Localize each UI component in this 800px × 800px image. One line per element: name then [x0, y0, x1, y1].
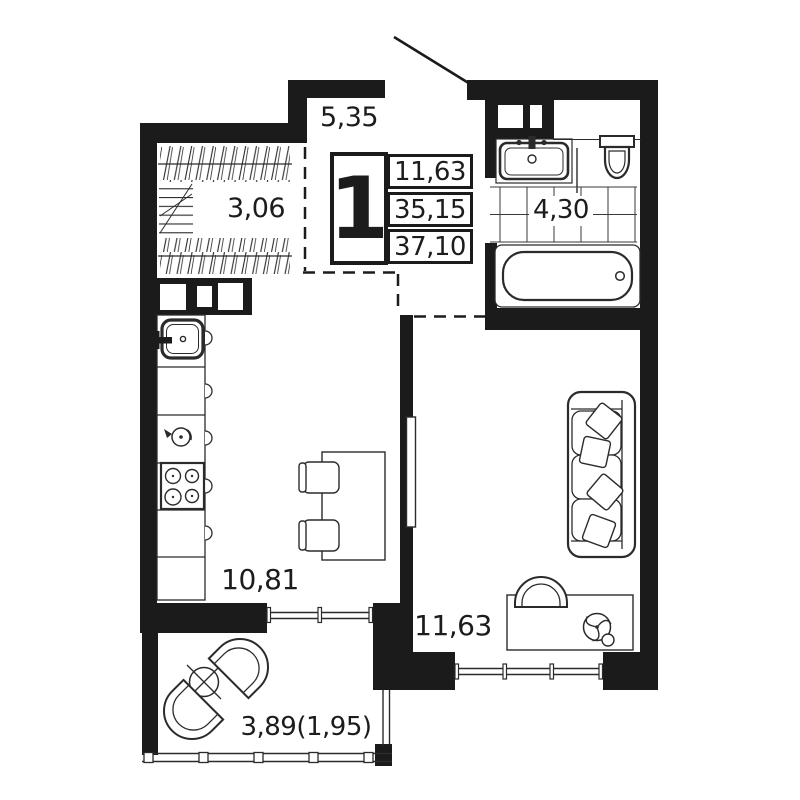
- living-room-window: [455, 652, 603, 690]
- hallway-area-label: 5,35: [312, 104, 386, 132]
- sofa: [568, 392, 635, 557]
- bathtub: [495, 245, 640, 307]
- tv-unit: [407, 417, 416, 527]
- bathroom-area-label: 4,30: [524, 197, 598, 224]
- living-room-area-label: 11,63: [408, 611, 498, 640]
- legend-total-area: 37,10: [387, 229, 473, 264]
- toilet: [600, 136, 634, 178]
- kitchen-chair: [299, 520, 339, 551]
- balcony-armchair: [209, 627, 280, 698]
- legend-box: 1 11,63 35,15 37,10: [330, 152, 473, 265]
- legend-living-area: 11,63: [387, 154, 473, 189]
- desk-chair: [515, 577, 567, 607]
- kitchen-stove: [161, 463, 204, 509]
- legend-rooms-count: 1: [330, 152, 388, 265]
- legend-usable-area: 35,15: [387, 192, 473, 227]
- wardrobe-area-label: 3,06: [219, 195, 293, 223]
- floorplan-graphic: [0, 0, 800, 800]
- balcony-window: [267, 603, 373, 633]
- kitchen-area-label: 10,81: [215, 565, 305, 594]
- floor-plan: 5,35 3,06 4,30 10,81 11,63 3,89(1,95) 1 …: [0, 0, 800, 800]
- kitchen-chair: [299, 462, 339, 493]
- entrance-door-line: [394, 37, 471, 85]
- balcony-area-label: 3,89(1,95): [234, 714, 378, 741]
